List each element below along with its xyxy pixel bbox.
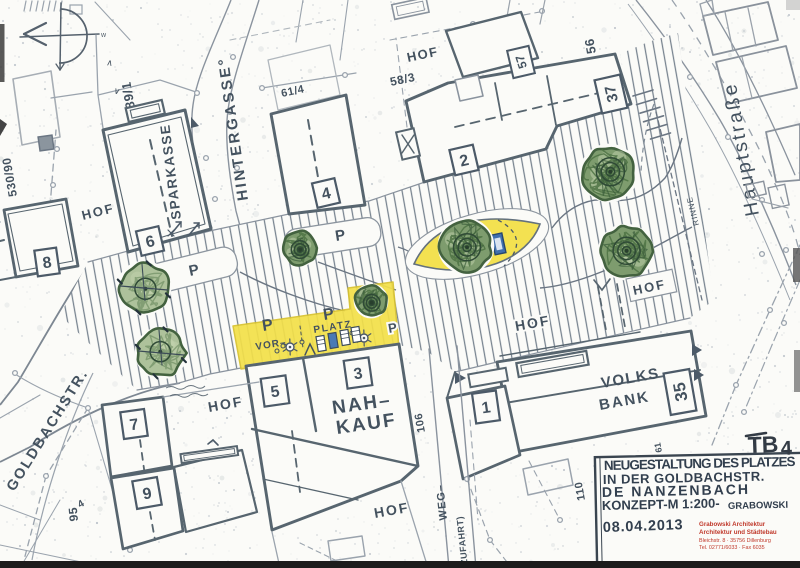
- svg-text:35: 35: [670, 381, 692, 403]
- svg-text:56: 56: [581, 37, 598, 55]
- svg-text:61: 61: [652, 442, 664, 454]
- svg-text:95: 95: [66, 506, 81, 522]
- svg-text:4: 4: [780, 438, 793, 460]
- svg-text:w: w: [100, 32, 107, 39]
- svg-text:Architektur und Städtebau: Architektur und Städtebau: [699, 529, 777, 536]
- svg-text:Grabowski Architektur: Grabowski Architektur: [699, 521, 766, 528]
- svg-text:Tel. 02771/6033 · Fax 6035: Tel. 02771/6033 · Fax 6035: [699, 545, 765, 551]
- svg-text:GRABOWSKI: GRABOWSKI: [728, 500, 788, 512]
- svg-text:08.04.2013: 08.04.2013: [603, 517, 684, 536]
- svg-text:Bleichstr. 8 · 35756 Dillenbur: Bleichstr. 8 · 35756 Dillenburg: [699, 538, 771, 544]
- svg-text:KONZEPT-M 1:200-: KONZEPT-M 1:200-: [602, 496, 720, 513]
